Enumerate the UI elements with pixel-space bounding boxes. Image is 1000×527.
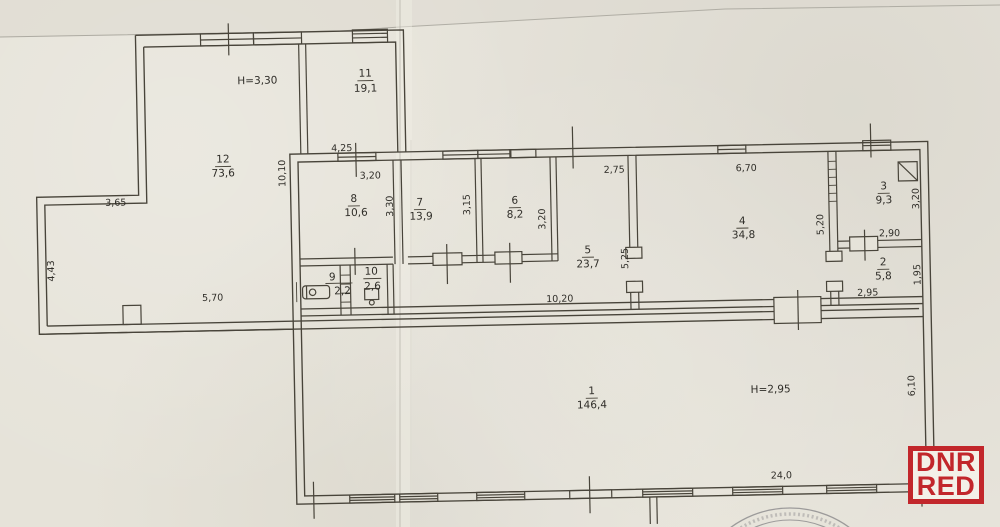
- room-number: 2: [880, 256, 887, 268]
- dim-label: 5,20: [815, 214, 826, 235]
- dim-label: 2,75: [604, 164, 625, 175]
- watermark-line2: RED: [917, 475, 976, 499]
- room-area: 9,3: [875, 194, 892, 206]
- door-4-3-jamb: [826, 281, 842, 291]
- room-number: 5: [584, 244, 591, 256]
- room-number: 7: [416, 197, 423, 209]
- dim-label: 3,65: [105, 197, 126, 208]
- dim-label: 10,10: [277, 160, 289, 187]
- room-area: 2,6: [364, 280, 381, 292]
- corridor-door: [495, 252, 522, 265]
- height-hall-label: H=2,95: [751, 383, 791, 396]
- room-area: 13,9: [409, 210, 433, 222]
- room-number: 1: [588, 385, 595, 397]
- room-number: 11: [358, 68, 372, 80]
- room-area: 10,6: [344, 207, 368, 219]
- room-8-label: 810,6: [344, 193, 368, 219]
- room-area: 146,4: [577, 399, 608, 412]
- exterior-door-stub: [650, 497, 651, 524]
- room-area: 34,8: [732, 229, 756, 241]
- dim-label: 3,20: [360, 170, 381, 181]
- dim-label: 3,20: [537, 208, 548, 229]
- dim-label: 4,25: [331, 143, 352, 154]
- room-10-label: 102,6: [363, 265, 382, 292]
- room-area: 8,2: [507, 209, 524, 221]
- annex-walls: [33, 30, 409, 334]
- room-number: 3: [880, 180, 887, 192]
- room-area: 5,8: [875, 270, 892, 282]
- room-12-label: 1273,6: [211, 153, 235, 179]
- dim-label: 2,90: [879, 228, 900, 239]
- floor-plan-svg: 1273,6 1119,1 810,6 713,9 68,2 523,7 434…: [0, 0, 1000, 527]
- dim-label: 6,70: [736, 163, 757, 174]
- dim-label: 3,15: [462, 194, 473, 215]
- dnr-red-watermark: DNR RED: [908, 446, 984, 504]
- dim-label: 6,10: [906, 375, 917, 396]
- room-11-label: 1119,1: [353, 67, 377, 94]
- dim-label: 2,95: [857, 287, 878, 298]
- dim-label: 4,43: [46, 260, 57, 281]
- dim-label: 24,0: [771, 470, 792, 481]
- dim-label: 3,20: [911, 188, 922, 209]
- room-area: 73,6: [211, 167, 235, 179]
- room-area: 2,2: [334, 285, 351, 297]
- room-number: 8: [350, 193, 357, 205]
- pillar: [123, 305, 141, 324]
- dim-label: 1,95: [912, 264, 923, 285]
- door-5-4-jamb: [626, 281, 642, 292]
- dim-label: 5,70: [202, 293, 223, 304]
- room-number: 12: [216, 153, 230, 165]
- door-4-3-jamb: [826, 251, 842, 261]
- door-3-2: [850, 236, 878, 251]
- wall-12-11: [299, 44, 301, 154]
- dim-label: 3,30: [385, 196, 396, 217]
- room-number: 4: [739, 215, 746, 227]
- room-number: 10: [364, 265, 378, 277]
- dim-label: 5,25: [620, 248, 631, 269]
- room-number: 9: [329, 271, 336, 283]
- room-area: 23,7: [576, 258, 600, 270]
- dim-label: 10,20: [546, 294, 573, 306]
- room-area: 19,1: [354, 82, 378, 94]
- height-annex-label: H=3,30: [237, 74, 277, 87]
- room-number: 6: [511, 195, 518, 207]
- scanned-floor-plan: 1273,6 1119,1 810,6 713,9 68,2 523,7 434…: [0, 0, 1000, 527]
